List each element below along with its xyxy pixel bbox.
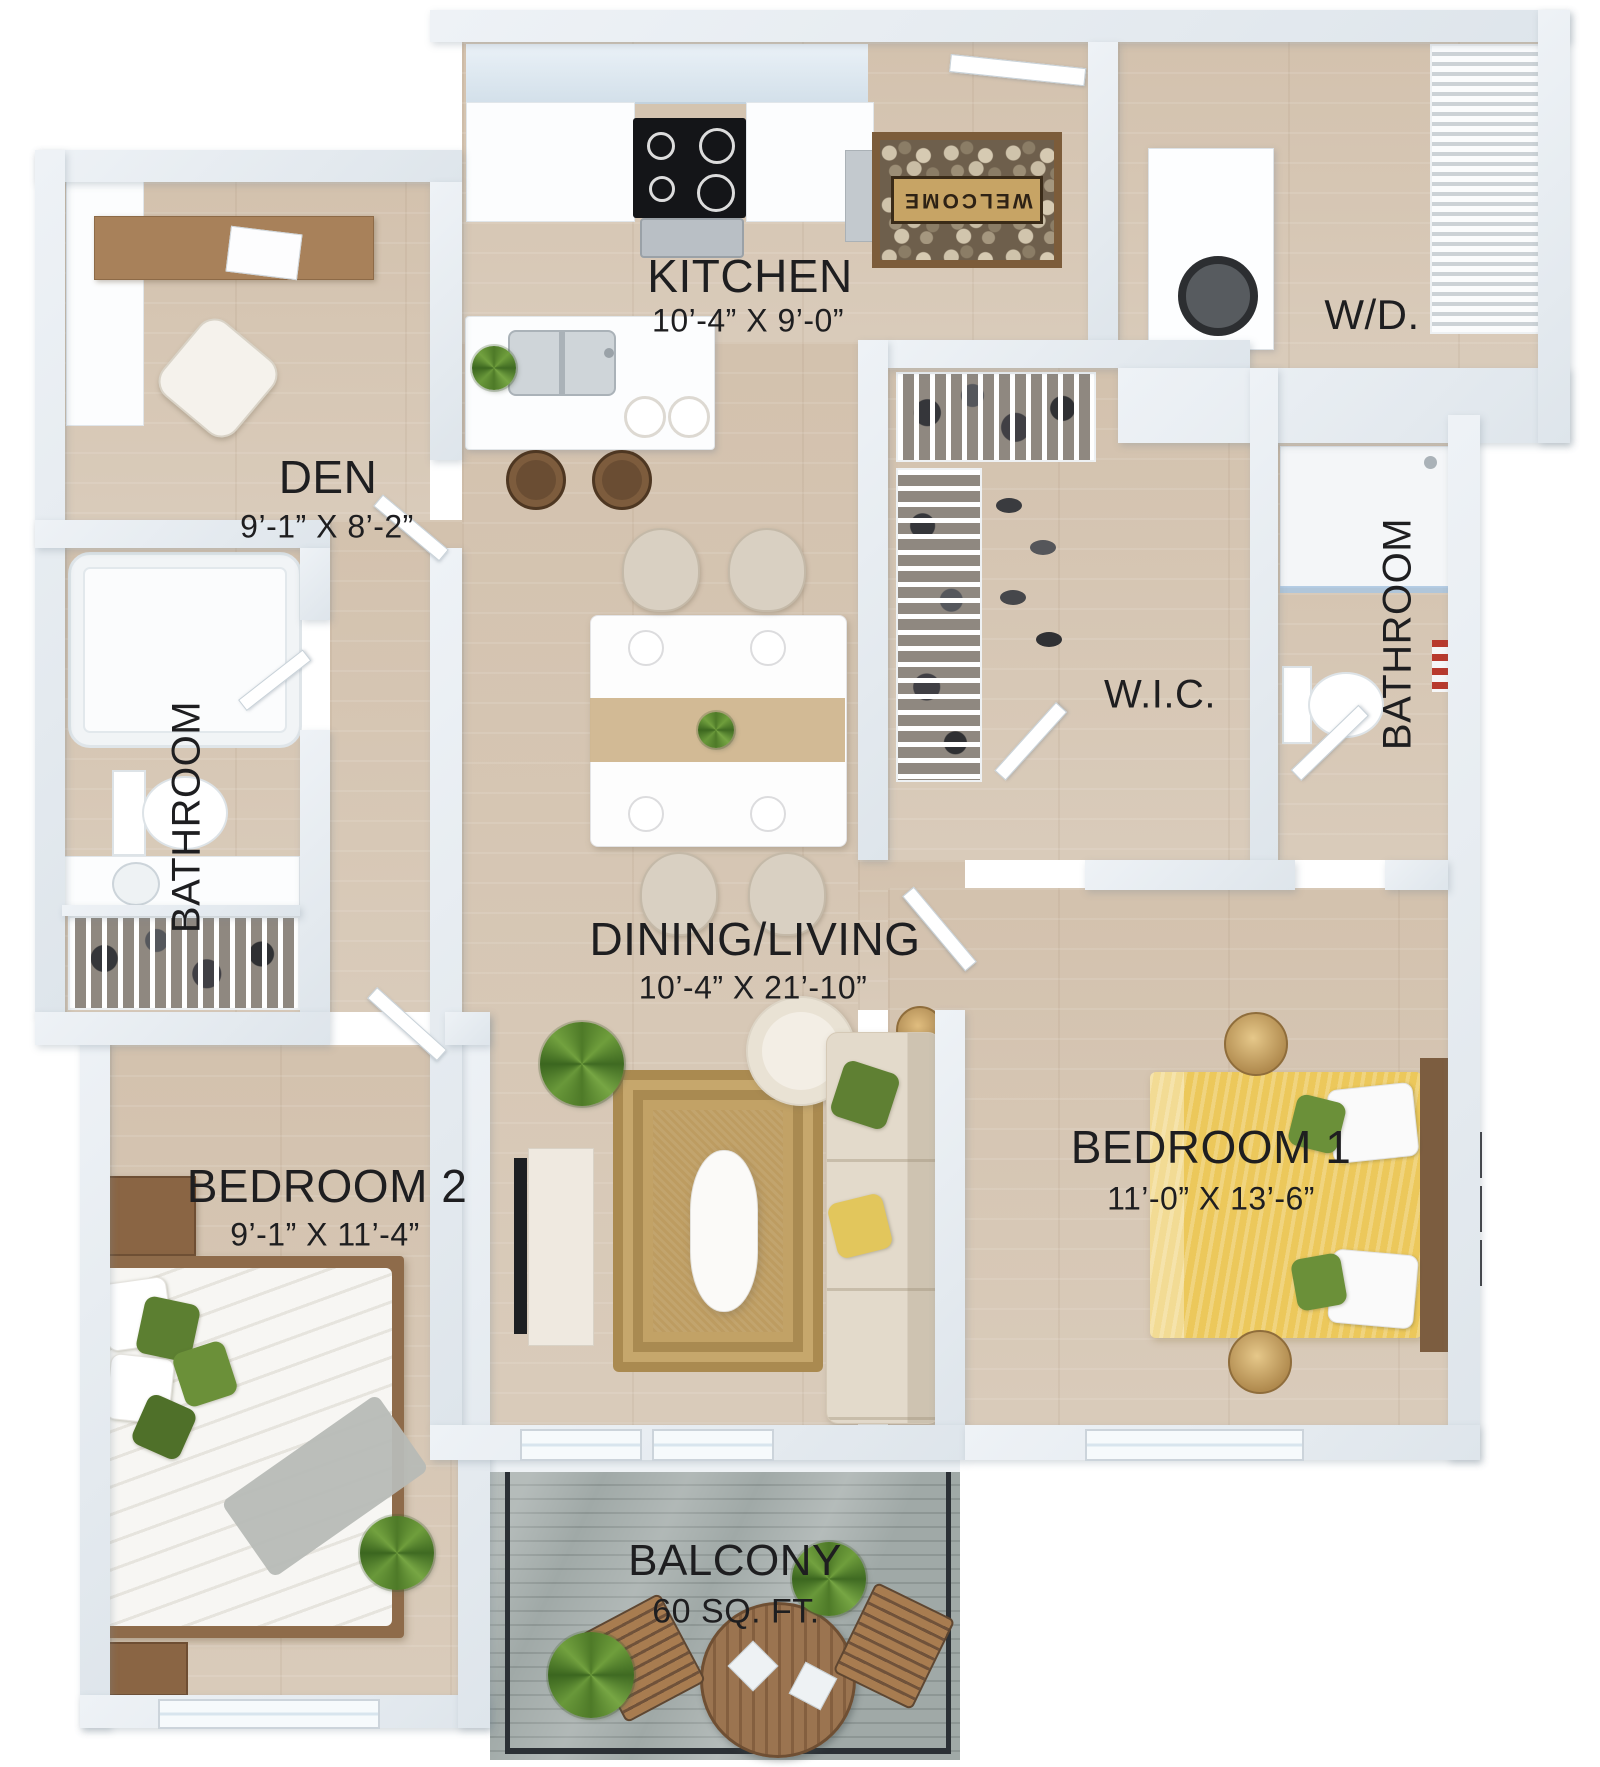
plate [628,796,664,832]
wall [1250,368,1278,860]
welcome-mat-text: WELCOME [902,188,1033,212]
wall [35,150,65,1015]
room-dims-bedroom-1: 11’-0” X 13’-6” [1107,1181,1315,1218]
wall [458,1015,490,1728]
room-label-wic: W.I.C. [1104,673,1216,718]
room-label-bedroom-2: BEDROOM 2 [187,1159,468,1213]
room-label-kitchen: KITCHEN [647,249,852,303]
kitchen-glass-cabinet [466,44,868,104]
bedroom-2-window [158,1699,380,1729]
room-dims-dining-living: 10’-4” X 21’-10” [639,970,868,1007]
tv-console [528,1148,594,1346]
wall [35,1012,330,1045]
wall [300,548,330,620]
double-sink [508,330,616,396]
den-laptop [225,226,302,280]
wall [1088,42,1118,340]
room-label-bathroom-left: BATHROOM [165,701,210,933]
dining-chair [622,528,700,612]
balcony-plant [548,1632,634,1718]
room-dims-bedroom-2: 9’-1” X 11’-4” [230,1217,420,1254]
shoes [996,498,1022,513]
wall [858,340,888,860]
living-room-plant [540,1022,624,1106]
place-setting-plate [668,396,710,438]
welcome-mat: WELCOME [872,132,1062,268]
dishwasher [845,150,874,242]
dining-chair [728,528,806,612]
toilet-tank [112,770,146,856]
room-label-bedroom-1: BEDROOM 1 [1071,1120,1352,1174]
wall [888,340,1250,368]
sink-basin [112,862,160,906]
bed-1-pillow-green [1290,1252,1348,1312]
stove-cooktop [633,118,746,218]
den-cabinet [66,168,144,426]
room-label-washer-dryer: W/D. [1324,291,1419,339]
wall [445,1012,490,1045]
stove-burner [649,176,675,202]
shoes [1030,540,1056,555]
floor-plan: WELCOME [0,0,1600,1767]
plate [628,630,664,666]
wall [430,548,462,1425]
wall [430,10,1570,42]
shower-glass [1280,586,1448,593]
stove-burner [697,174,735,212]
wall [35,150,462,182]
shoes [1036,632,1062,647]
plate [750,630,786,666]
wall [1085,860,1295,890]
wic-shelf-top [896,372,1096,462]
wall [1385,860,1448,890]
room-dims-den: 9’-1” X 8’-2” [240,509,414,546]
washer-door [1178,256,1258,336]
wall [1118,368,1570,443]
shower-head [1424,456,1437,469]
wall [1448,415,1480,1460]
living-room-window [652,1429,774,1461]
wall [1538,10,1570,443]
stove-burner [699,128,735,164]
bar-stool [592,450,652,510]
tv [514,1158,527,1334]
coffee-table [690,1150,758,1312]
wall [935,1010,965,1425]
room-dims-balcony: 60 SQ. FT. [652,1593,820,1632]
plate [750,796,786,832]
nightstand [1228,1330,1292,1394]
room-label-dining-living: DINING/LIVING [589,912,920,966]
kitchen-counter-left [466,102,635,222]
shoes [1000,590,1026,605]
bedroom-1-window [1085,1429,1304,1461]
table-centerpiece [698,712,734,748]
bar-stool [506,450,566,510]
bed-1-headboard [1420,1058,1448,1352]
towel-rack [1432,640,1448,692]
living-room-window [520,1429,642,1461]
wd-wire-shelf [1430,44,1542,334]
wic-shelf-left [896,468,982,782]
nightstand [1224,1012,1288,1076]
place-setting-plate [624,396,666,438]
wall [80,1015,110,1728]
wall [430,182,462,460]
welcome-mat-plaque: WELCOME [891,176,1043,224]
room-label-balcony: BALCONY [628,1536,842,1586]
faucet [604,348,614,358]
shower-area [1280,446,1450,588]
stove-burner [647,132,675,160]
wall [300,730,330,1012]
room-dims-kitchen: 10’-4” X 9’-0” [652,303,844,340]
room-label-den: DEN [279,450,378,504]
island-plant [472,346,516,390]
bedroom-2-plant [360,1516,434,1590]
room-label-bathroom-right: BATHROOM [1376,518,1421,750]
